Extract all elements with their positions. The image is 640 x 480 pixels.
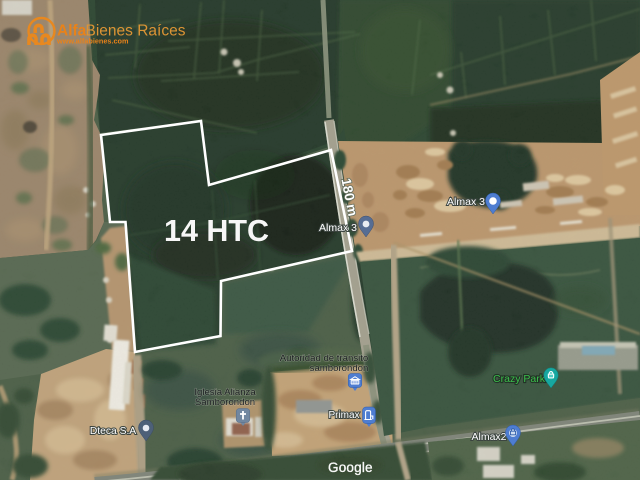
svg-text:Almax2: Almax2	[471, 431, 506, 443]
svg-text:Primax: Primax	[328, 410, 359, 421]
svg-text:Crazy Park: Crazy Park	[493, 373, 546, 385]
svg-text:Samborondon: Samborondon	[195, 397, 255, 408]
svg-text:samborondon: samborondon	[310, 363, 369, 374]
svg-text:Almax 3: Almax 3	[319, 222, 357, 234]
svg-text:Dteca S.A: Dteca S.A	[90, 426, 136, 437]
svg-text:14 HTC: 14 HTC	[164, 214, 269, 248]
svg-text:www.alfabienes.com: www.alfabienes.com	[56, 37, 129, 46]
svg-text:Almax 3: Almax 3	[447, 196, 485, 208]
svg-text:Google: Google	[328, 460, 373, 475]
